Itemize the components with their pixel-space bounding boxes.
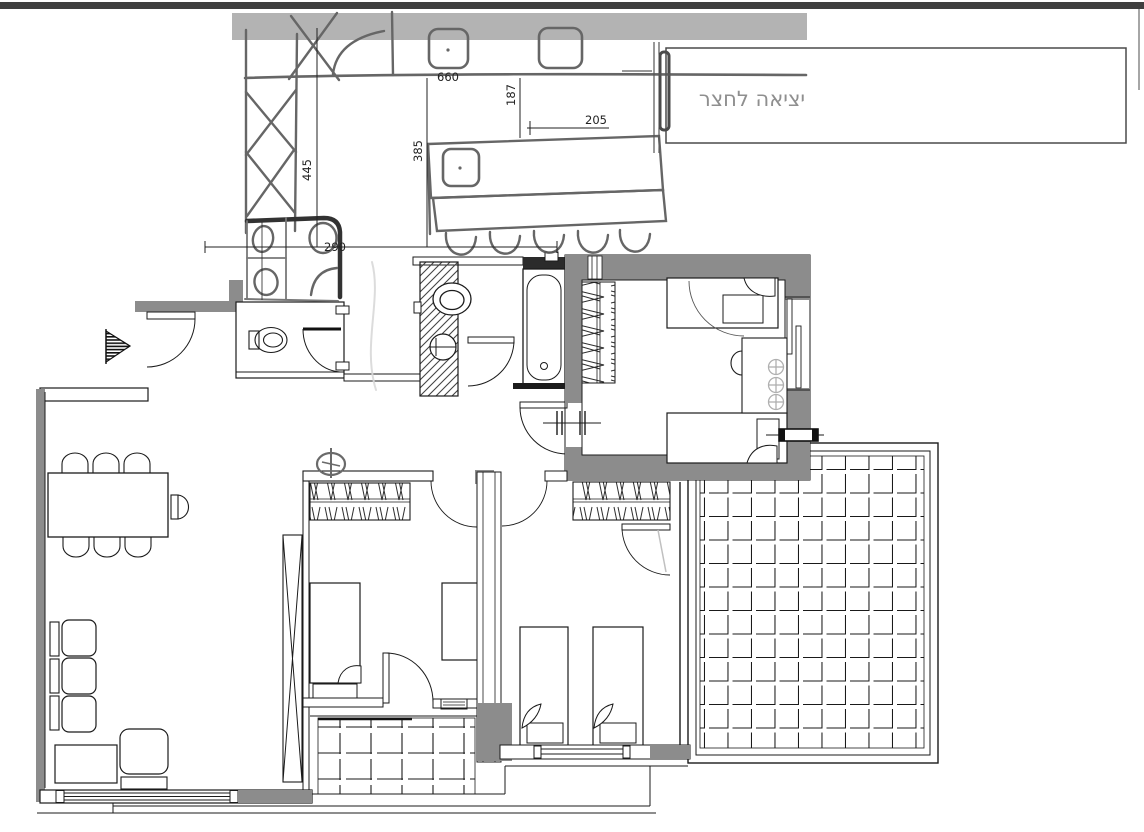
bathroom-door-leaf xyxy=(468,337,514,343)
bedroom1-door2-swing xyxy=(386,653,433,702)
sketch-stools xyxy=(446,230,650,255)
hall-wall xyxy=(344,374,420,381)
hallway-door xyxy=(520,402,567,454)
bathroom-sink xyxy=(433,283,471,315)
bedroom1-wardrobe xyxy=(310,483,410,520)
patio-small xyxy=(310,716,480,794)
sketch-island xyxy=(428,136,666,234)
patio-large-tiles xyxy=(700,456,924,748)
dining-chairs-bottom xyxy=(63,537,151,557)
bathtub xyxy=(523,269,565,386)
entrance-door-swing xyxy=(147,319,195,367)
bedroom2-door-swing xyxy=(502,481,547,526)
sketch-tall-cabinet xyxy=(246,13,339,233)
bathroom xyxy=(413,252,565,396)
floor-plan-page: יציאה לחצר xyxy=(0,0,1144,832)
bedroom1-door-leaf xyxy=(383,653,389,703)
master-dresser-knobs xyxy=(769,360,784,410)
entrance-wall xyxy=(135,301,232,312)
entrance-arrow-icon xyxy=(106,329,130,364)
dim-tall-cabinet: 445 xyxy=(300,159,314,181)
sketch-counter-band xyxy=(232,13,807,40)
wc-room xyxy=(236,302,349,378)
sketch-ghost-stroke xyxy=(371,262,376,390)
dim-sketch-bath: 290 xyxy=(324,240,346,254)
armchair xyxy=(120,729,168,789)
master-window xyxy=(785,297,810,390)
dim-counter: 660 xyxy=(437,70,459,84)
yard-label: יציאה לחצר xyxy=(699,87,805,111)
section-marker xyxy=(543,411,601,435)
entrance-door-leaf xyxy=(147,312,195,319)
master-bed-top xyxy=(667,278,778,328)
bedroom2-wardrobe-door-leaf xyxy=(622,524,670,530)
dim-island-length: 205 xyxy=(585,113,607,127)
sofa xyxy=(50,620,96,732)
master-chair xyxy=(731,351,742,375)
bedroom2-bed-a xyxy=(520,627,568,747)
patio-large xyxy=(688,443,938,763)
dim-island-width: 385 xyxy=(411,140,425,162)
bathroom-door-swing xyxy=(468,340,514,386)
bedroom1-door-swing xyxy=(431,481,477,527)
bedroom2-bed-b xyxy=(593,627,643,747)
coffee-table xyxy=(55,745,117,783)
yard-area: יציאה לחצר xyxy=(622,42,1126,153)
living-furniture xyxy=(48,453,302,789)
master-bedroom xyxy=(543,255,824,480)
entrance xyxy=(36,280,243,402)
master-wardrobe xyxy=(582,282,615,383)
dining-chairs-top xyxy=(62,453,150,473)
bedroom2-wardrobe-door-swing xyxy=(622,527,670,575)
bedroom-2 xyxy=(477,471,690,762)
bathroom-toilet xyxy=(430,334,456,360)
sketch-bathroom xyxy=(245,218,340,301)
floor-plan-drawing: יציאה לחצר xyxy=(0,0,1144,832)
bedroom2-wardrobe xyxy=(573,482,670,520)
dining-table xyxy=(48,473,168,537)
master-bed-bottom xyxy=(667,413,787,463)
dim-counter-depth: 187 xyxy=(504,84,518,106)
dining-chair-end xyxy=(171,495,189,519)
bathroom-plumbing-wall xyxy=(420,262,458,396)
bedroom1-bed xyxy=(310,583,361,699)
patio-small-tiles xyxy=(318,718,475,794)
tv-cabinet xyxy=(283,535,302,782)
